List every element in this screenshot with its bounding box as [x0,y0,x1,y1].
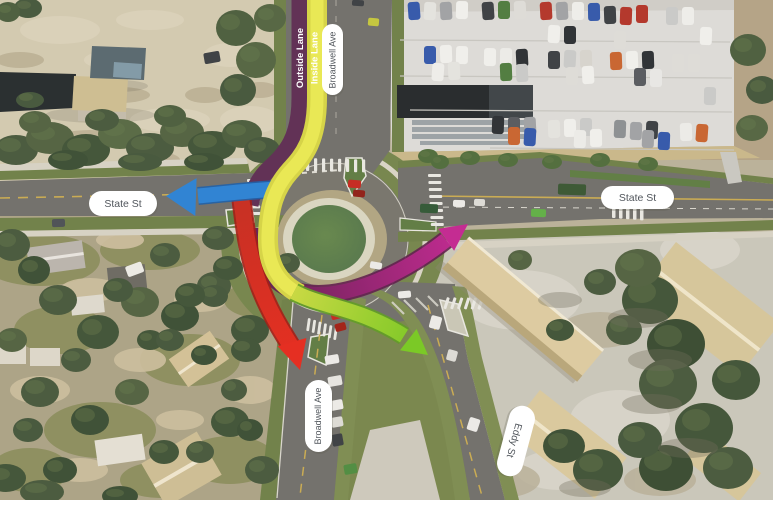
svg-text:Broadwell Ave: Broadwell Ave [328,32,338,89]
svg-text:State St: State St [104,198,141,210]
svg-text:Broadwell Ave: Broadwell Ave [313,388,323,445]
svg-text:Inside Lane: Inside Lane [310,32,321,84]
svg-text:Outside Lane: Outside Lane [295,28,306,88]
svg-text:State St: State St [619,192,656,204]
